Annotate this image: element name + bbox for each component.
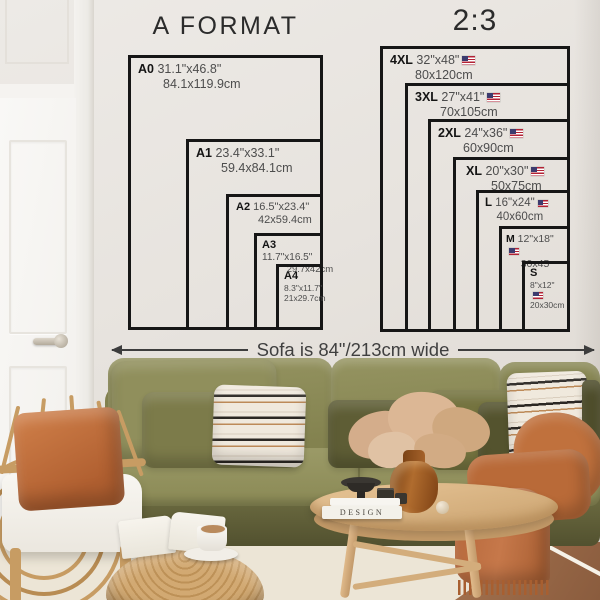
ratio-2-3-title: 2:3 [380,4,570,38]
size-inches: 32"x48" [416,53,459,67]
size-label: 4XL [390,53,413,67]
size-cm: 20x30cm [530,300,566,310]
size-cm: 70x105cm [415,105,564,120]
size-label: 3XL [415,90,438,104]
design-book-title: DESIGN [340,508,384,517]
wooden-ball-decor [436,501,449,514]
size-inches: 8.3"x11.7" [284,283,318,293]
size-rect-s: S 8"x12" 20x30cm [522,261,570,332]
size-cm: 80x120cm [390,68,564,83]
wall-molding-panel [5,0,69,64]
open-book-page [118,515,176,559]
size-rect-a4: A4 8.3"x11.7" 21x29.7cm [276,264,323,330]
size-cm: 21x29.7cm [284,293,318,303]
size-inches: 27"x41" [441,90,484,104]
size-guide-scene: DESIGN A FORMAT A0 31.1"x46.8" 84.1x119.… [0,0,600,600]
size-cm: 84.1x119.9cm [138,77,317,92]
size-label: XL [466,164,482,178]
size-inches: 24"x36" [464,126,507,140]
size-inches: 12"x18" [518,233,554,245]
size-label: A3 [262,239,276,251]
coffee-surface [200,524,226,534]
size-cm: 60x90cm [438,141,564,156]
size-inches: 8"x12" [530,280,554,290]
size-label: A2 [236,201,250,213]
white-book [330,498,400,506]
a-format-title: A FORMAT [128,12,323,41]
size-label: A0 [138,62,154,76]
size-inches: 20"x30" [485,164,528,178]
size-label: 2XL [438,126,461,140]
chair-leg [10,548,21,600]
us-flag-icon [533,292,543,299]
design-book-spine: DESIGN [322,506,402,519]
us-flag-icon [487,93,500,102]
size-inches: 31.1"x46.8" [157,62,221,76]
size-inches: 23.4"x33.1" [215,146,279,160]
size-label: S [530,267,566,280]
sofa-width-annotation: Sofa is 84"/213cm wide [112,340,594,360]
size-cm: 59.4x84.1cm [196,161,317,176]
size-label: M [506,233,515,245]
size-inches: 11.7"x16.5" [262,252,312,263]
size-cm: 42x59.4cm [236,214,317,227]
us-flag-icon [509,248,519,255]
size-cm: 40x60cm [485,211,564,225]
us-flag-icon [510,129,523,138]
size-inches: 16"x24" [495,197,535,209]
sofa-width-text: Sofa is 84"/213cm wide [257,339,450,361]
door-handle-rosette [54,334,68,348]
right-arrow [458,349,594,351]
us-flag-icon [538,200,548,207]
us-flag-icon [462,56,475,65]
striped-pillow [212,384,307,467]
size-inches: 16.5"x23.4" [253,201,309,213]
size-label: L [485,197,492,209]
us-flag-icon [531,167,544,176]
left-arrow [112,349,248,351]
size-label: A1 [196,146,212,160]
size-label: A4 [284,270,318,283]
rust-pillow [13,406,126,511]
